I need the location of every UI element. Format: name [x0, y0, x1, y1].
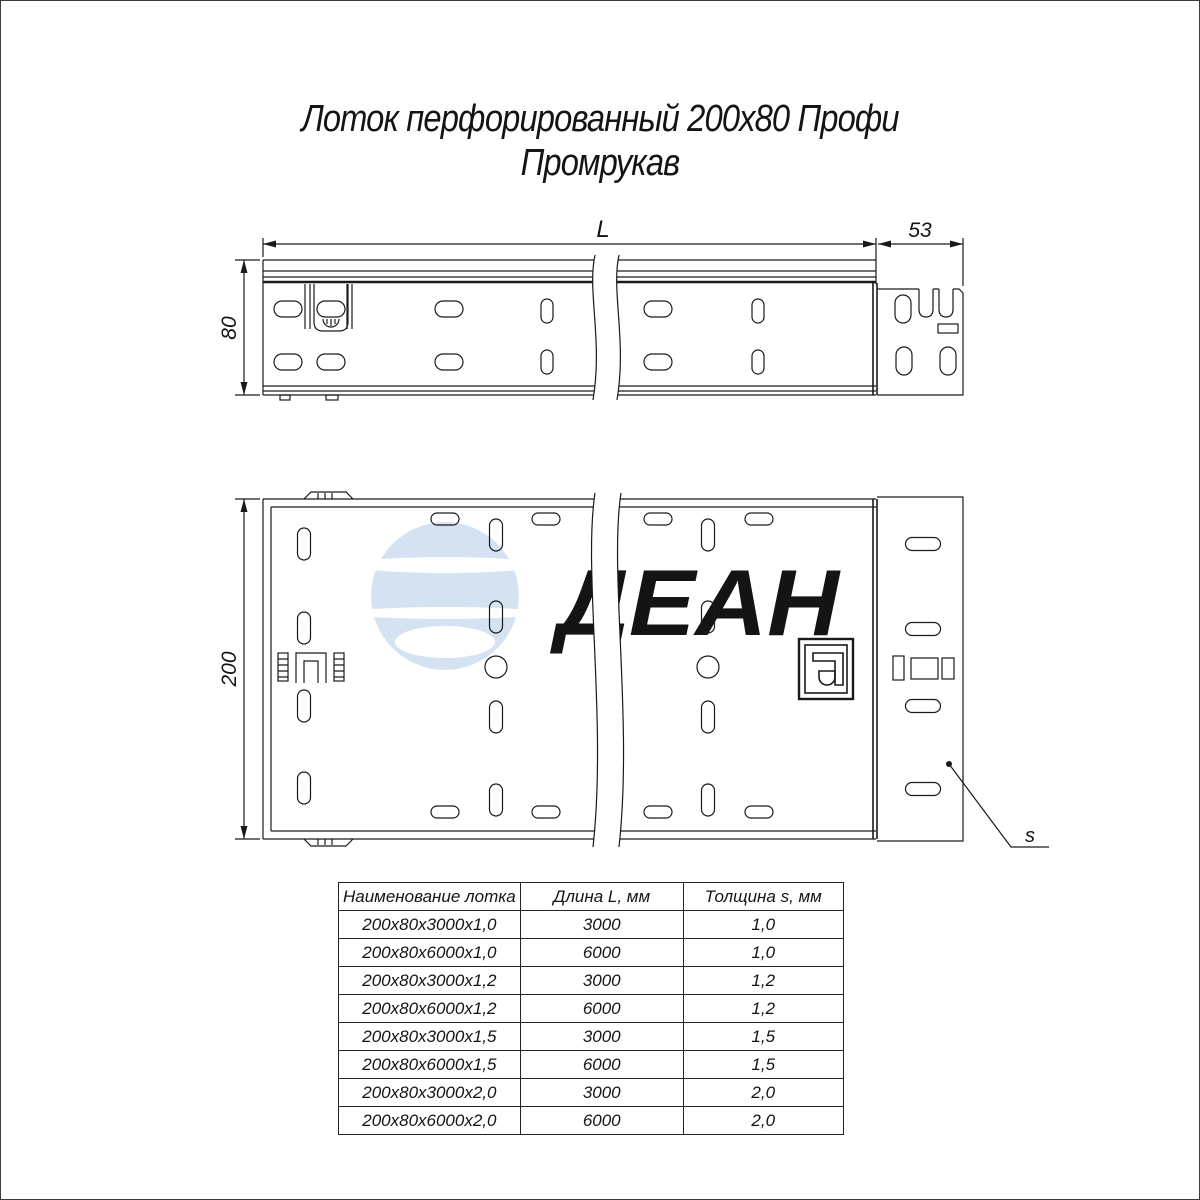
dimension-53: 53 [878, 219, 963, 286]
cell-name: 200х80х3000х1,2 [339, 967, 521, 995]
dim-label-53: 53 [908, 219, 932, 242]
stamp-mark [323, 319, 339, 327]
cell-length: 6000 [520, 1107, 683, 1135]
table-row: 200х80х6000х2,0 6000 2,0 [339, 1107, 844, 1135]
title-block: Лоток перфорированный 200х80 Профи Промр… [1, 97, 1199, 185]
cell-name: 200х80х3000х1,0 [339, 911, 521, 939]
side-view-connector [877, 289, 963, 395]
dim-label-80: 80 [218, 316, 241, 340]
top-view-break [592, 493, 624, 847]
col-header-thickness: Толщина s, мм [683, 883, 843, 911]
dimension-L: L [263, 216, 876, 284]
mounting-clip [305, 284, 352, 331]
edge-latch-bottom [304, 839, 353, 846]
cell-thickness: 1,5 [683, 1023, 843, 1051]
col-header-length: Длина L, мм [520, 883, 683, 911]
cell-thickness: 1,5 [683, 1051, 843, 1079]
cell-name: 200х80х3000х2,0 [339, 1079, 521, 1107]
table-row: 200х80х3000х1,5 3000 1,5 [339, 1023, 844, 1051]
cell-length: 6000 [520, 1051, 683, 1079]
cell-name: 200х80х6000х2,0 [339, 1107, 521, 1135]
top-view-connector [877, 497, 963, 841]
table-row: 200х80х6000х1,0 6000 1,0 [339, 939, 844, 967]
edge-latch-top [304, 492, 353, 499]
cell-thickness: 2,0 [683, 1079, 843, 1107]
cell-thickness: 1,0 [683, 911, 843, 939]
cell-length: 3000 [520, 967, 683, 995]
spec-table: Наименование лотка Длина L, мм Толщина s… [338, 882, 844, 1135]
table-row: 200х80х6000х1,5 6000 1,5 [339, 1051, 844, 1079]
cell-length: 3000 [520, 1079, 683, 1107]
cell-length: 3000 [520, 911, 683, 939]
drawing-title-line1: Лоток перфорированный 200х80 Профи [85, 97, 1115, 141]
table-row: 200х80х3000х2,0 3000 2,0 [339, 1079, 844, 1107]
dimension-80: 80 [218, 260, 260, 395]
cell-name: 200х80х6000х1,5 [339, 1051, 521, 1079]
dimension-s-leader: s [946, 761, 1049, 847]
table-row: 200х80х3000х1,2 3000 1,2 [339, 967, 844, 995]
table-header-row: Наименование лотка Длина L, мм Толщина s… [339, 883, 844, 911]
dim-label-s: s [1025, 825, 1035, 847]
dim-label-200: 200 [218, 651, 241, 687]
side-view-break [593, 255, 621, 400]
top-view [263, 492, 963, 847]
dimension-200: 200 [218, 499, 260, 839]
drawing-sheet: Лоток перфорированный 200х80 Профи Промр… [0, 0, 1200, 1200]
cell-length: 6000 [520, 995, 683, 1023]
cell-thickness: 1,2 [683, 995, 843, 1023]
cell-name: 200х80х3000х1,5 [339, 1023, 521, 1051]
cell-name: 200х80х6000х1,0 [339, 939, 521, 967]
cell-length: 3000 [520, 1023, 683, 1051]
dim-label-L: L [596, 216, 609, 243]
cell-thickness: 1,2 [683, 967, 843, 995]
col-header-name: Наименование лотка [339, 883, 521, 911]
drawing-title-line2: Промрукав [85, 141, 1115, 185]
table-row: 200х80х6000х1,2 6000 1,2 [339, 995, 844, 1023]
cell-thickness: 2,0 [683, 1107, 843, 1135]
table-row: 200х80х3000х1,0 3000 1,0 [339, 911, 844, 939]
cell-length: 6000 [520, 939, 683, 967]
cell-thickness: 1,0 [683, 939, 843, 967]
staple-feature [278, 653, 344, 683]
cell-name: 200х80х6000х1,2 [339, 995, 521, 1023]
side-view [263, 255, 963, 400]
